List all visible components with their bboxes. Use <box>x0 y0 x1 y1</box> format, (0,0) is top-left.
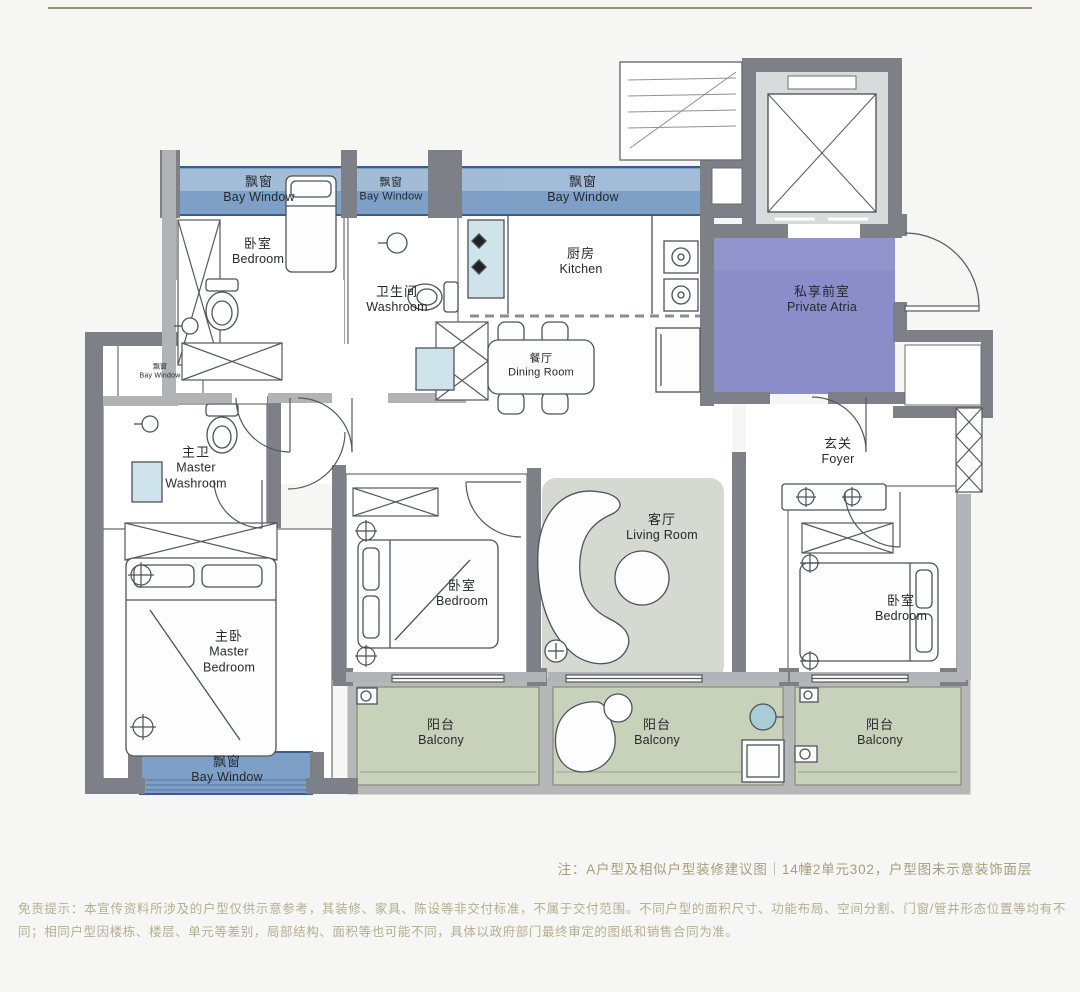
label-private-atria: 私享前室 Private Atria <box>787 284 857 316</box>
label-balcony-right-zh: 阳台 <box>857 717 903 733</box>
label-dining-room-zh: 餐厅 <box>508 352 574 366</box>
label-foyer-en: Foyer <box>822 452 855 468</box>
label-bedroom-top-left-en: Bedroom <box>232 252 284 268</box>
elevator <box>756 72 888 224</box>
label-balcony-left-en: Balcony <box>418 733 464 749</box>
label-bay-window-top-left-en: Bay Window <box>223 190 294 206</box>
disclaimer-text: 免责提示：本宣传资料所涉及的户型仅供示意参考，其装修、家具、陈设等非交付标准，不… <box>18 898 1066 943</box>
label-washroom: 卫生间 Washroom <box>366 284 428 316</box>
label-balcony-left: 阳台 Balcony <box>418 717 464 749</box>
label-bay-window-top-mid: 飘窗 Bay Window <box>359 176 422 204</box>
label-dining-room: 餐厅 Dining Room <box>508 352 574 380</box>
floorplan-drawing <box>0 0 1080 992</box>
label-bedroom-middle-zh: 卧室 <box>436 578 488 594</box>
label-bay-window-top-left: 飘窗 Bay Window <box>223 174 294 206</box>
label-master-washroom-en: Master Washroom <box>153 461 239 492</box>
label-living-room: 客厅 Living Room <box>626 512 698 544</box>
label-balcony-middle-en: Balcony <box>634 733 680 749</box>
label-kitchen: 厨房 Kitchen <box>559 246 602 278</box>
plan-note: 注：A户型及相似户型装修建议图｜14幢2单元302，户型图未示意装饰面层 <box>558 858 1032 878</box>
label-private-atria-en: Private Atria <box>787 300 857 316</box>
label-bedroom-right: 卧室 Bedroom <box>875 593 927 625</box>
label-private-atria-zh: 私享前室 <box>787 284 857 300</box>
label-living-room-zh: 客厅 <box>626 512 698 528</box>
label-bedroom-top-left: 卧室 Bedroom <box>232 236 284 268</box>
label-master-washroom: 主卫 Master Washroom <box>153 444 239 492</box>
label-master-bedroom-en: Master Bedroom <box>186 645 272 676</box>
label-kitchen-en: Kitchen <box>559 262 602 278</box>
pipe-shaft-top <box>712 168 742 204</box>
label-bedroom-right-en: Bedroom <box>875 609 927 625</box>
label-foyer: 玄关 Foyer <box>822 436 855 468</box>
label-bay-window-master: 飘窗 Bay Window <box>191 754 262 786</box>
label-balcony-right: 阳台 Balcony <box>857 717 903 749</box>
label-kitchen-zh: 厨房 <box>559 246 602 262</box>
label-balcony-middle-zh: 阳台 <box>634 717 680 733</box>
label-washroom-en: Washroom <box>366 300 428 316</box>
label-bay-window-master-en: Bay Window <box>191 770 262 786</box>
label-master-bedroom-zh: 主卧 <box>186 628 272 644</box>
label-bedroom-middle-en: Bedroom <box>436 594 488 610</box>
label-bay-window-kitchen-en: Bay Window <box>547 190 618 206</box>
label-bay-window-kitchen: 飘窗 Bay Window <box>547 174 618 206</box>
label-balcony-middle: 阳台 Balcony <box>634 717 680 749</box>
label-bedroom-right-zh: 卧室 <box>875 593 927 609</box>
label-foyer-zh: 玄关 <box>822 436 855 452</box>
label-bay-window-master-zh: 飘窗 <box>191 754 262 770</box>
label-balcony-right-en: Balcony <box>857 733 903 749</box>
label-bay-window-top-mid-zh: 飘窗 <box>359 176 422 190</box>
label-bay-window-left-small-en: Bay Window <box>140 372 181 381</box>
label-bay-window-top-left-zh: 飘窗 <box>223 174 294 190</box>
label-dining-room-en: Dining Room <box>508 366 574 380</box>
label-master-bedroom: 主卧 Master Bedroom <box>186 628 272 676</box>
floorplan-page: 飘窗 Bay Window 飘窗 Bay Window 飘窗 Bay Windo… <box>0 0 1080 992</box>
label-bedroom-top-left-zh: 卧室 <box>232 236 284 252</box>
label-master-washroom-zh: 主卫 <box>153 444 239 460</box>
label-living-room-en: Living Room <box>626 528 698 544</box>
label-balcony-left-zh: 阳台 <box>418 717 464 733</box>
label-bay-window-kitchen-zh: 飘窗 <box>547 174 618 190</box>
label-bay-window-left-small: 飘窗 Bay Window <box>140 363 181 381</box>
label-bay-window-left-small-zh: 飘窗 <box>140 363 181 372</box>
label-washroom-zh: 卫生间 <box>366 284 428 300</box>
label-bedroom-middle: 卧室 Bedroom <box>436 578 488 610</box>
label-bay-window-top-mid-en: Bay Window <box>359 190 422 204</box>
